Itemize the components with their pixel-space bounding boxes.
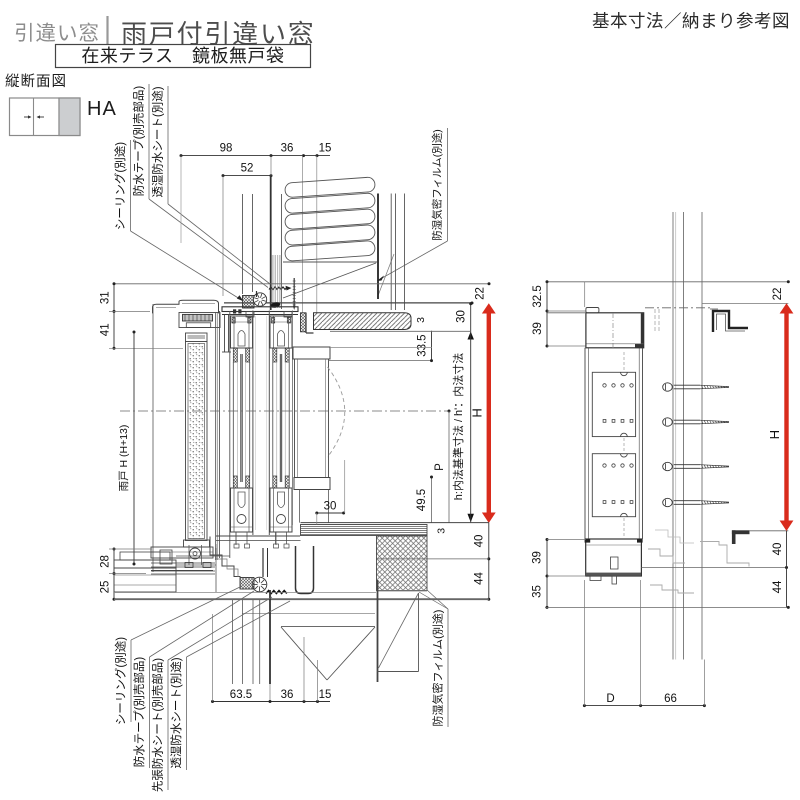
svg-text:44: 44 bbox=[772, 580, 784, 593]
svg-text:先張防水シート(別売部品): 先張防水シート(別売部品) bbox=[151, 658, 165, 792]
svg-text:25: 25 bbox=[100, 581, 112, 594]
svg-text:52: 52 bbox=[241, 163, 254, 175]
svg-text:39: 39 bbox=[532, 322, 544, 335]
svg-text:30: 30 bbox=[324, 501, 337, 513]
svg-text:49.5: 49.5 bbox=[416, 489, 428, 511]
svg-text:31: 31 bbox=[100, 291, 112, 304]
svg-text:40: 40 bbox=[474, 535, 486, 548]
svg-text:h:内法基準寸法 / h'：内法寸法: h:内法基準寸法 / h'：内法寸法 bbox=[451, 353, 465, 501]
svg-text:3: 3 bbox=[415, 317, 427, 323]
svg-text:防湿気密フィルム(別途): 防湿気密フィルム(別途) bbox=[431, 129, 444, 241]
svg-text:22: 22 bbox=[475, 287, 487, 300]
svg-text:雨戸 H (H+13): 雨戸 H (H+13) bbox=[118, 425, 130, 492]
svg-text:15: 15 bbox=[319, 143, 332, 155]
svg-text:30: 30 bbox=[456, 310, 468, 323]
svg-text:引違い窓: 引違い窓 bbox=[14, 22, 100, 45]
svg-text:98: 98 bbox=[220, 143, 233, 155]
svg-text:H: H bbox=[767, 430, 782, 439]
svg-text:36: 36 bbox=[281, 689, 294, 701]
svg-text:透湿防水シート(別途): 透湿防水シート(別途) bbox=[151, 86, 165, 197]
svg-text:3: 3 bbox=[436, 528, 448, 534]
svg-text:39: 39 bbox=[532, 551, 544, 564]
svg-text:33.5: 33.5 bbox=[417, 334, 429, 356]
svg-text:44: 44 bbox=[474, 572, 486, 585]
svg-text:防水テープ(別売部品): 防水テープ(別売部品) bbox=[132, 657, 146, 768]
svg-text:シーリング(別途): シーリング(別途) bbox=[113, 142, 127, 230]
svg-text:22: 22 bbox=[772, 288, 784, 301]
svg-text:28: 28 bbox=[100, 555, 112, 568]
svg-text:透湿防水シート(別途): 透湿防水シート(別途) bbox=[169, 657, 183, 768]
svg-text:P: P bbox=[434, 463, 446, 471]
svg-text:縦断面図: 縦断面図 bbox=[5, 73, 67, 90]
svg-text:在来テラス 鏡板無戸袋: 在来テラス 鏡板無戸袋 bbox=[81, 46, 284, 66]
svg-text:66: 66 bbox=[664, 693, 677, 705]
svg-text:シーリング(別途): シーリング(別途) bbox=[114, 637, 128, 725]
svg-text:63.5: 63.5 bbox=[230, 689, 252, 701]
svg-text:35: 35 bbox=[532, 585, 544, 598]
svg-text:15: 15 bbox=[319, 689, 332, 701]
svg-text:防湿気密フィルム(別途): 防湿気密フィルム(別途) bbox=[431, 610, 445, 727]
svg-text:H: H bbox=[470, 408, 485, 417]
svg-text:HA: HA bbox=[87, 98, 117, 120]
svg-text:D: D bbox=[606, 693, 614, 705]
svg-text:32.5: 32.5 bbox=[532, 285, 544, 307]
svg-text:基本寸法／納まり参考図: 基本寸法／納まり参考図 bbox=[592, 11, 790, 31]
svg-text:防水テープ(別売部品): 防水テープ(別売部品) bbox=[132, 86, 146, 197]
svg-text:40: 40 bbox=[772, 543, 784, 556]
svg-text:36: 36 bbox=[281, 143, 294, 155]
svg-text:41: 41 bbox=[100, 323, 112, 336]
